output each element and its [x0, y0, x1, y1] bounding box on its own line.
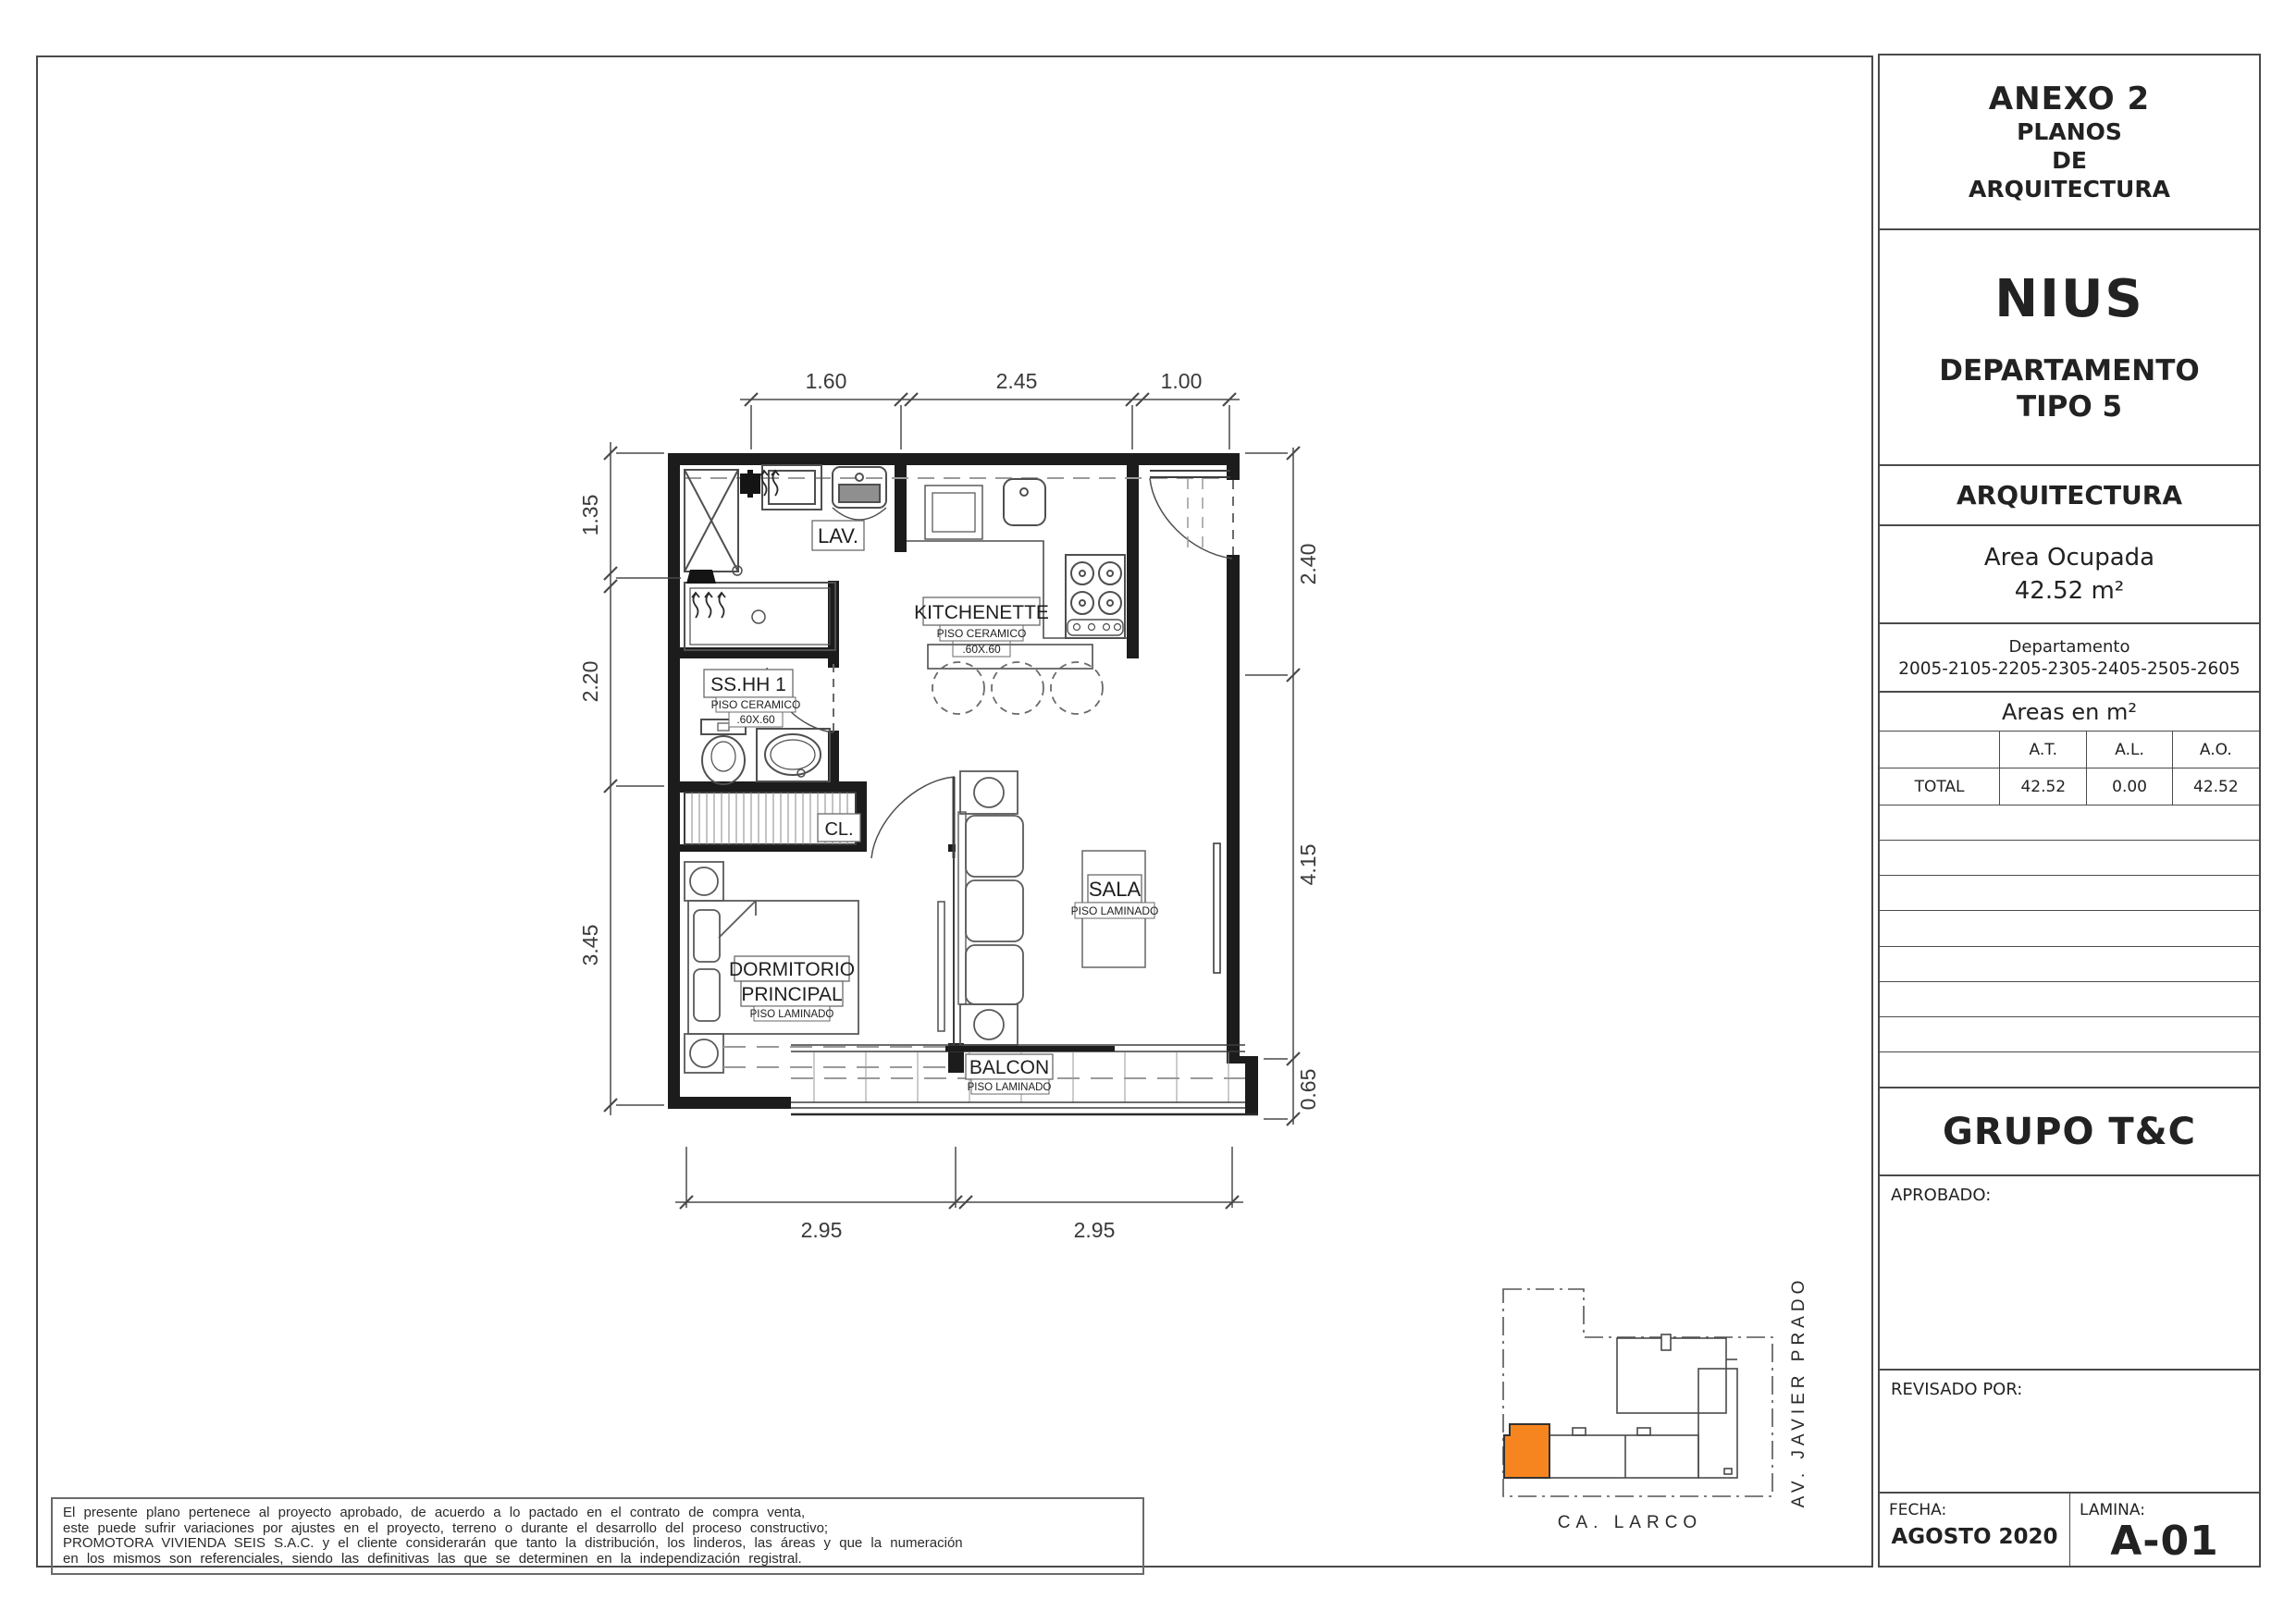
floor-label: PISO CERAMICO: [937, 627, 1027, 640]
disclaimer-line: PROMOTORA VIVIENDA SEIS S.A.C. y el clie…: [63, 1536, 1132, 1552]
street-label-javier-prado: AV. JAVIER PRADO: [1789, 1276, 1808, 1508]
discipline-label: ARQUITECTURA: [1957, 480, 2182, 510]
floor-size-label: .60X.60: [736, 713, 775, 726]
project-sub-line: TIPO 5: [1880, 389, 2259, 425]
fecha-label: FECHA:: [1889, 1501, 2060, 1519]
bar-stools: [932, 662, 1103, 714]
pillow: [694, 969, 720, 1021]
sofa-cushion: [966, 945, 1023, 1004]
disclaimer-line: en los mismos son referenciales, siendo …: [63, 1552, 1132, 1568]
dim-left-1: 1.35: [578, 495, 602, 536]
entry-door: [1150, 471, 1233, 559]
bedroom-window-dashes: [723, 1047, 951, 1067]
lamina-number: A-01: [2080, 1518, 2250, 1565]
shower: [685, 583, 835, 650]
room-label-closet: CL.: [824, 819, 853, 840]
street-label-ca-larco: CA. LARCO: [1558, 1513, 1702, 1532]
floor-label: PISO LAMINADO: [1071, 904, 1159, 917]
areas-table-header: A.T. A.L. A.O.: [1880, 731, 2259, 768]
fecha-lamina-section: FECHA: AGOSTO 2020 LAMINA: A-01: [1880, 1492, 2259, 1566]
stove: [1066, 555, 1125, 638]
departamento-label: Departamento: [2009, 637, 2130, 657]
burner: [1071, 562, 1093, 584]
fecha-cell: FECHA: AGOSTO 2020: [1880, 1494, 2069, 1566]
burner: [1071, 592, 1093, 614]
anexo-sub: DE: [2052, 146, 2087, 175]
disclaimer-line: este puede sufrir variaciones por ajuste…: [63, 1521, 1132, 1537]
sliding-door-panel: [945, 1046, 1115, 1051]
project-name: NIUS: [1880, 269, 2259, 329]
empty-row: [1880, 1051, 2259, 1087]
areas-title-row: Areas en m²: [1880, 691, 2259, 731]
empty-row: [1880, 805, 2259, 840]
pillow: [694, 910, 720, 962]
room-label-sala: SALA: [1089, 878, 1142, 901]
anexo-sub: PLANOS: [2017, 117, 2122, 146]
fecha-value: AGOSTO 2020: [1889, 1525, 2060, 1549]
dim-left-3: 3.45: [578, 925, 602, 966]
lamina-cell: LAMINA: A-01: [2069, 1494, 2259, 1566]
bedroom-sliding-panel: [938, 902, 944, 1031]
floor-label: PISO CERAMICO: [711, 698, 801, 711]
aprobado-label: APROBADO:: [1891, 1186, 1991, 1205]
dim-right-2: 4.15: [1296, 844, 1320, 886]
empty-table-rows: [1880, 805, 2259, 1087]
dim-right-3: 0.65: [1296, 1069, 1320, 1111]
table-value-ao: 42.52: [2172, 768, 2259, 805]
water-valve-icon: [740, 470, 760, 498]
project-subtitle: DEPARTAMENTO TIPO 5: [1880, 353, 2259, 425]
empty-row: [1880, 840, 2259, 875]
window-panel: [1214, 843, 1220, 973]
revisado-section: REVISADO POR:: [1880, 1369, 2259, 1492]
dim-bottom-1: 2.95: [801, 1218, 843, 1242]
company-section: GRUPO T&C: [1880, 1087, 2259, 1174]
anexo-sub: ARQUITECTURA: [1969, 175, 2170, 203]
areas-table-total-row: TOTAL 42.52 0.00 42.52: [1880, 768, 2259, 805]
dimension-top: [740, 393, 1240, 449]
table-value-at: 42.52: [1999, 768, 2086, 805]
table-header-ao: A.O.: [2172, 732, 2259, 768]
table-row-label: TOTAL: [1880, 768, 1999, 805]
steam-arrows-shower: [692, 593, 725, 618]
empty-row: [1880, 1016, 2259, 1051]
room-label-kitchenette: KITCHENETTE: [914, 602, 1049, 623]
floor-size-label: .60X.60: [962, 643, 1001, 656]
room-label-principal: PRINCIPAL: [741, 984, 842, 1005]
kitchen-sink: [1004, 479, 1045, 525]
dim-left-2: 2.20: [578, 661, 602, 703]
anexo-title: ANEXO 2: [1989, 80, 2150, 117]
title-anexo-section: ANEXO 2 PLANOS DE ARQUITECTURA: [1880, 55, 2259, 228]
vanity: [757, 729, 830, 781]
project-sub-line: DEPARTAMENTO: [1880, 353, 2259, 389]
lamina-label: LAMINA:: [2080, 1501, 2250, 1519]
building-right-block: [1698, 1369, 1737, 1478]
empty-row: [1880, 981, 2259, 1016]
table-value-al: 0.00: [2086, 768, 2171, 805]
room-label-dormitorio: DORMITORIO: [729, 959, 855, 980]
dim-top-1: 1.60: [806, 369, 847, 393]
site-plan: CA. LARCO AV. JAVIER PRADO: [1503, 1276, 1808, 1532]
burner: [1099, 592, 1121, 614]
title-block: ANEXO 2 PLANOS DE ARQUITECTURA NIUS DEPA…: [1878, 54, 2261, 1568]
highlighted-unit: [1504, 1424, 1549, 1478]
dim-right-1: 2.40: [1296, 544, 1320, 585]
floor-label: PISO LAMINADO: [968, 1082, 1052, 1093]
toilet-bowl: [702, 736, 745, 784]
room-label-sshh: SS.HH 1: [710, 674, 786, 695]
burner: [1099, 562, 1121, 584]
revisado-label: REVISADO POR:: [1891, 1380, 2022, 1399]
sofa-cushion: [966, 880, 1023, 941]
project-section: NIUS DEPARTAMENTO TIPO 5: [1880, 228, 2259, 464]
dimension-right: [1245, 447, 1300, 1125]
aprobado-section: APROBADO:: [1880, 1174, 2259, 1369]
disclaimer-box: El presente plano pertenece al proyecto …: [51, 1497, 1144, 1575]
area-label: Area Ocupada: [1984, 541, 2154, 574]
shower-head-icon: [686, 570, 716, 584]
areas-title: Areas en m²: [2002, 699, 2137, 725]
discipline-section: ARQUITECTURA: [1880, 464, 2259, 524]
building-upper-block: [1617, 1338, 1726, 1413]
floor-label: PISO LAMINADO: [750, 1009, 834, 1020]
shower-handle: [752, 610, 765, 623]
room-label-lav: LAV.: [818, 524, 858, 547]
table-header-at: A.T.: [1999, 732, 2086, 768]
dimension-bottom: [675, 1147, 1243, 1209]
empty-row: [1880, 875, 2259, 910]
dim-top-3: 1.00: [1161, 369, 1203, 393]
dim-top-2: 2.45: [996, 369, 1038, 393]
room-labels: LAV. KITCHENETTE PISO CERAMICO .60X.60 S…: [704, 521, 1158, 1094]
room-label-balcon: BALCON: [969, 1057, 1049, 1078]
departamento-section: Departamento 2005-2105-2205-2305-2405-25…: [1880, 622, 2259, 691]
area-section: Area Ocupada 42.52 m²: [1880, 524, 2259, 622]
sofa-cushion: [966, 816, 1023, 877]
dim-bottom-2: 2.95: [1074, 1218, 1116, 1242]
disclaimer-line: El presente plano pertenece al proyecto …: [63, 1506, 1132, 1521]
table-header-al: A.L.: [2086, 732, 2171, 768]
departamento-numbers: 2005-2105-2205-2305-2405-2505-2605: [1898, 659, 2240, 679]
area-value: 42.52 m²: [2015, 574, 2124, 608]
drawing-sheet: LAV. KITCHENETTE PISO CERAMICO .60X.60 S…: [0, 0, 2296, 1623]
empty-row: [1880, 946, 2259, 981]
company-name: GRUPO T&C: [1943, 1111, 2196, 1153]
bedroom-door-arc: [871, 777, 955, 858]
bed-fold: [719, 901, 756, 938]
table-header-empty: [1880, 732, 1999, 768]
empty-row: [1880, 910, 2259, 945]
